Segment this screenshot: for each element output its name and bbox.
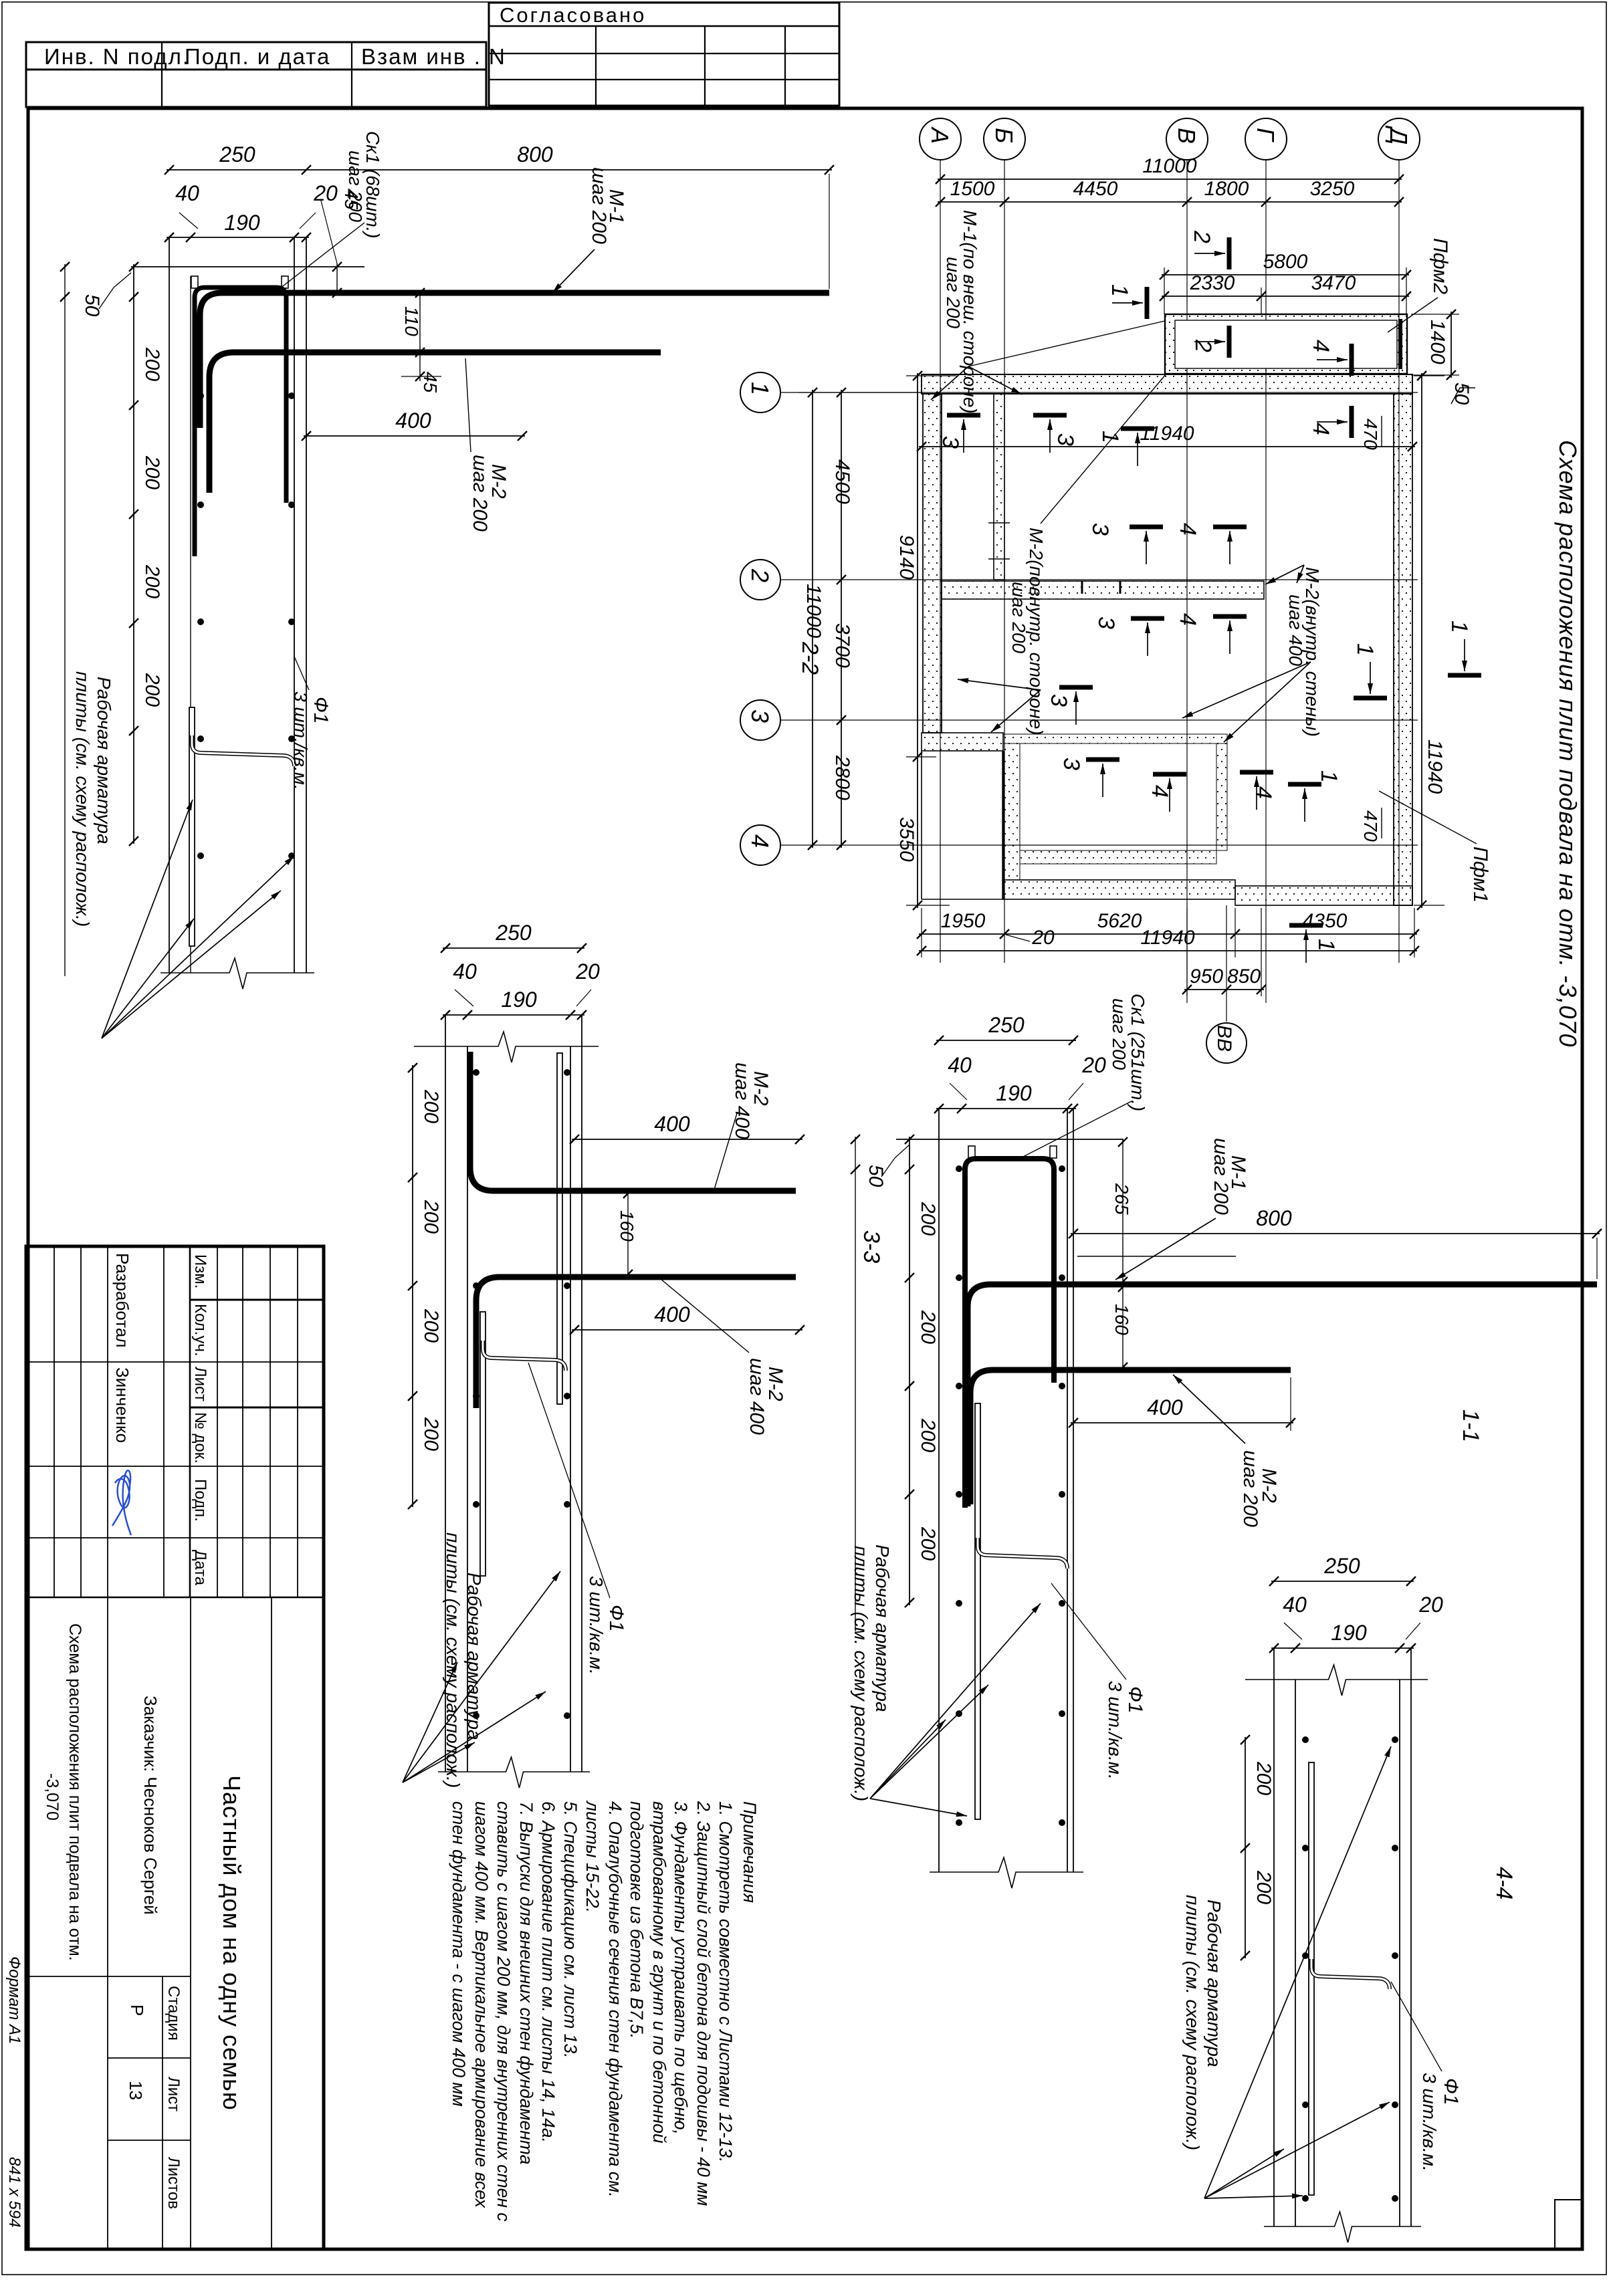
svg-text:9140: 9140 [895,535,918,580]
svg-text:800: 800 [1256,1206,1292,1230]
svg-text:Ф1: Ф1 [1440,2078,1462,2105]
svg-text:Пфм2: Пфм2 [1429,238,1451,294]
svg-text:40: 40 [1283,1593,1307,1617]
svg-text:1: 1 [746,382,774,395]
svg-text:250: 250 [219,142,255,166]
svg-text:850: 850 [1227,965,1261,988]
svg-text:250: 250 [988,1013,1025,1037]
svg-text:5800: 5800 [1263,251,1308,273]
svg-text:1: 1 [1446,620,1472,633]
svg-text:4: 4 [1251,786,1276,799]
svg-text:1: 1 [1097,431,1123,443]
svg-text:Ск1 (251шт.): Ск1 (251шт.) [1128,994,1148,1111]
svg-text:3: 3 [1059,758,1084,770]
svg-text:1: 1 [1313,939,1339,951]
svg-text:Листов: Листов [165,2157,183,2209]
svg-text:Р: Р [127,2004,147,2016]
svg-text:1-1: 1-1 [1458,1409,1483,1442]
svg-text:950: 950 [1190,965,1223,988]
svg-text:160: 160 [1111,1304,1132,1335]
svg-text:шагом 400 мм. Вертикальное арм: шагом 400 мм. Вертикальное армирование в… [471,1801,492,2209]
svg-text:1950: 1950 [941,910,986,932]
svg-text:20: 20 [1081,1053,1106,1077]
svg-text:3. Фундаменты устраивать по ще: 3. Фундаменты устраивать по щебню, [671,1801,691,2135]
svg-text:400: 400 [395,409,431,433]
svg-text:20: 20 [1031,927,1055,949]
svg-text:3 шт./кв.м.: 3 шт./кв.м. [1105,1681,1125,1780]
svg-text:-3,070: -3,070 [43,1773,62,1821]
svg-text:Д: Д [1385,125,1412,144]
svg-text:Ф1: Ф1 [310,697,332,724]
svg-text:Схема расположения плит подвал: Схема расположения плит подвала на отм. … [1554,440,1582,1047]
svg-text:Ф1: Ф1 [605,1605,627,1632]
svg-text:200: 200 [420,1089,442,1123]
svg-text:плиты (см. схему располож.): плиты (см. схему располож.) [443,1532,463,1788]
svg-text:Взам инв . N: Взам инв . N [361,44,506,69]
svg-text:4: 4 [1175,613,1200,626]
svg-text:1400: 1400 [1426,320,1449,364]
svg-text:Г: Г [1252,128,1279,142]
svg-text:Рабочая арматура: Рабочая арматура [1204,1900,1224,2067]
svg-text:Пфм1: Пфм1 [1469,846,1491,903]
svg-text:Лист: Лист [191,1367,209,1401]
svg-text:13: 13 [126,2081,146,2100]
svg-text:20: 20 [313,181,338,205]
svg-text:Б: Б [990,128,1018,143]
svg-text:3: 3 [938,436,963,449]
svg-text:200: 200 [1253,1870,1275,1904]
svg-text:Изм.: Изм. [191,1254,209,1288]
svg-text:Подп. и дата: Подп. и дата [185,44,330,69]
svg-text:3 шт./кв.м.: 3 шт./кв.м. [290,691,311,790]
svg-text:2330: 2330 [1190,272,1235,294]
svg-text:4: 4 [1308,423,1333,435]
svg-text:110: 110 [401,306,422,336]
svg-text:190: 190 [224,211,260,235]
svg-text:400: 400 [654,1302,690,1327]
svg-text:3: 3 [1087,523,1113,536]
svg-text:Примечания: Примечания [740,1801,760,1903]
svg-text:Зинченко: Зинченко [112,1367,132,1443]
svg-text:4: 4 [746,834,774,848]
svg-text:190: 190 [1331,1621,1367,1645]
svg-text:втрамбованному в грунт и по бе: втрамбованному в грунт и по бетонной [649,1801,669,2144]
svg-text:Инв. N подл.: Инв. N подл. [44,44,190,69]
svg-text:Формат А1: Формат А1 [5,1956,23,2044]
svg-text:4-4: 4-4 [1491,1867,1517,1900]
svg-text:1: 1 [1352,643,1378,656]
svg-text:1. Смотреть совместно с Листам: 1. Смотреть совместно с Листами 12-13. [716,1801,736,2162]
svg-text:50: 50 [81,294,103,317]
svg-text:4. Опалубочные сечения стен фу: 4. Опалубочные сечения стен фундамента с… [605,1801,625,2198]
svg-text:11940: 11940 [1140,423,1194,445]
svg-text:3550: 3550 [895,817,918,862]
svg-text:3700: 3700 [831,623,853,668]
svg-text:45: 45 [420,372,441,393]
svg-text:3250: 3250 [1310,178,1355,200]
svg-text:4: 4 [1175,523,1200,536]
svg-text:шаг 400: шаг 400 [731,1062,753,1139]
svg-text:2-2: 2-2 [797,641,823,675]
svg-text:200: 200 [420,1417,442,1451]
svg-text:4: 4 [1308,340,1333,352]
svg-text:190: 190 [501,988,537,1012]
svg-text:А: А [926,126,954,144]
svg-text:Частный дом на одну семью: Частный дом на одну семью [218,1775,245,2111]
svg-text:1800: 1800 [1204,178,1249,200]
svg-text:4500: 4500 [831,459,853,504]
svg-text:4: 4 [1147,785,1172,798]
svg-text:5. Спецификацию см. лист 13.: 5. Спецификацию см. лист 13. [560,1801,580,2058]
svg-text:6. Армирование плит см. листы: 6. Армирование плит см. листы 14, 14а. [538,1801,558,2143]
svg-text:Рабочая арматура: Рабочая арматура [94,677,114,844]
svg-text:40: 40 [948,1053,972,1077]
svg-text:шаг 400: шаг 400 [1285,594,1306,667]
svg-text:3470: 3470 [1311,272,1356,294]
svg-text:5620: 5620 [1097,910,1142,932]
svg-text:Схема расположения плит подвал: Схема расположения плит подвала на отм. [66,1623,84,1961]
svg-text:3 шт./кв.м.: 3 шт./кв.м. [586,1576,607,1675]
svg-text:2: 2 [1189,230,1214,243]
svg-text:Рабочая арматура: Рабочая арматура [872,1544,893,1712]
svg-text:4450: 4450 [1073,178,1118,200]
svg-text:Подп.: Подп. [191,1479,209,1522]
svg-text:200: 200 [917,1201,939,1236]
svg-text:4350: 4350 [1303,910,1348,932]
svg-text:шаг 200: шаг 200 [345,150,366,223]
svg-text:50: 50 [1451,382,1473,405]
svg-text:2: 2 [746,568,774,582]
svg-text:200: 200 [917,1526,939,1561]
svg-text:листы 15-22.: листы 15-22. [582,1800,603,1913]
svg-text:20: 20 [1418,1593,1443,1617]
svg-text:160: 160 [617,1210,637,1242]
svg-text:800: 800 [517,142,553,166]
svg-text:250: 250 [1323,1554,1360,1578]
svg-text:2: 2 [1190,339,1216,352]
svg-text:470: 470 [1360,419,1381,450]
svg-text:400: 400 [1147,1395,1183,1419]
svg-text:3: 3 [1053,433,1078,446]
svg-text:Согласовано: Согласовано [500,3,646,27]
svg-text:3-3: 3-3 [859,1230,884,1263]
svg-text:200: 200 [141,455,163,489]
svg-text:стен фундамента - с шагом 400: стен фундамента - с шагом 400 мм [449,1801,469,2107]
svg-text:шаг 200: шаг 200 [943,257,964,329]
svg-text:плиты (см. схему располож.): плиты (см. схему располож.) [72,671,93,927]
svg-text:шаг 400: шаг 400 [746,1358,768,1435]
svg-text:ВВ: ВВ [1213,1025,1235,1052]
svg-text:200: 200 [1253,1761,1275,1795]
svg-text:Ф1: Ф1 [1124,1686,1146,1714]
svg-text:3 шт./кв.м.: 3 шт./кв.м. [1419,2073,1440,2172]
svg-text:Кол.уч.: Кол.уч. [191,1304,209,1357]
svg-text:7. Выпуски для внешних стен фу: 7. Выпуски для внешних стен фундамента [516,1801,536,2164]
svg-text:190: 190 [996,1081,1032,1105]
svg-text:шаг 200: шаг 200 [1008,582,1029,654]
svg-text:1: 1 [1107,284,1132,297]
svg-text:50: 50 [865,1165,887,1187]
svg-text:3: 3 [1093,616,1119,629]
svg-text:В: В [1173,128,1200,144]
svg-text:шаг 200: шаг 200 [1109,998,1130,1070]
svg-text:подготовке из бетона В7,5.: подготовке из бетона В7,5. [627,1801,647,2039]
svg-text:470: 470 [1360,810,1381,842]
svg-text:40: 40 [175,181,199,205]
svg-text:шаг 200: шаг 200 [1210,1138,1232,1215]
svg-text:Рабочая арматура: Рабочая арматура [464,1573,485,1740]
svg-text:№ док.: № док. [191,1412,209,1464]
svg-text:200: 200 [420,1308,442,1343]
svg-text:200: 200 [141,673,163,707]
svg-text:Стадия: Стадия [165,1986,183,2041]
svg-text:2800: 2800 [831,755,853,800]
svg-text:200: 200 [917,1310,939,1344]
svg-text:265: 265 [1111,1183,1132,1215]
svg-text:Разработал: Разработал [112,1253,132,1348]
svg-text:шаг 200: шаг 200 [588,167,610,244]
svg-text:плиты (см. схему располож.): плиты (см. схему располож.) [851,1546,871,1801]
svg-text:Заказчик: Чесноков Сергей: Заказчик: Чесноков Сергей [140,1696,160,1915]
svg-text:Лист: Лист [165,2077,183,2111]
svg-text:3: 3 [1046,694,1071,707]
svg-text:шаг 200: шаг 200 [469,455,491,532]
svg-text:200: 200 [141,347,163,381]
svg-text:2. Защитный слой бетона для по: 2. Защитный слой бетона для подошвы - 40… [693,1801,714,2206]
svg-text:3: 3 [746,709,774,723]
svg-text:40: 40 [453,959,477,984]
svg-text:841 х 594: 841 х 594 [5,2157,23,2227]
svg-text:200: 200 [917,1418,939,1452]
svg-text:11000: 11000 [1142,155,1197,177]
svg-text:11940: 11940 [1424,739,1446,794]
svg-text:Дата: Дата [191,1550,209,1586]
svg-text:400: 400 [654,1112,690,1136]
svg-text:1: 1 [1316,770,1342,783]
svg-text:200: 200 [141,564,163,598]
svg-text:200: 200 [420,1199,442,1234]
svg-text:шаг 200: шаг 200 [1239,1450,1261,1527]
svg-text:20: 20 [575,959,600,984]
svg-text:11000: 11000 [802,584,825,639]
svg-text:250: 250 [495,921,532,945]
svg-text:плиты (см. схему располож.): плиты (см. схему располож.) [1182,1895,1203,2150]
svg-text:ставить с шагом 200 мм, для вн: ставить с шагом 200 мм, для внутренних с… [494,1801,514,2222]
svg-text:1500: 1500 [950,178,995,200]
